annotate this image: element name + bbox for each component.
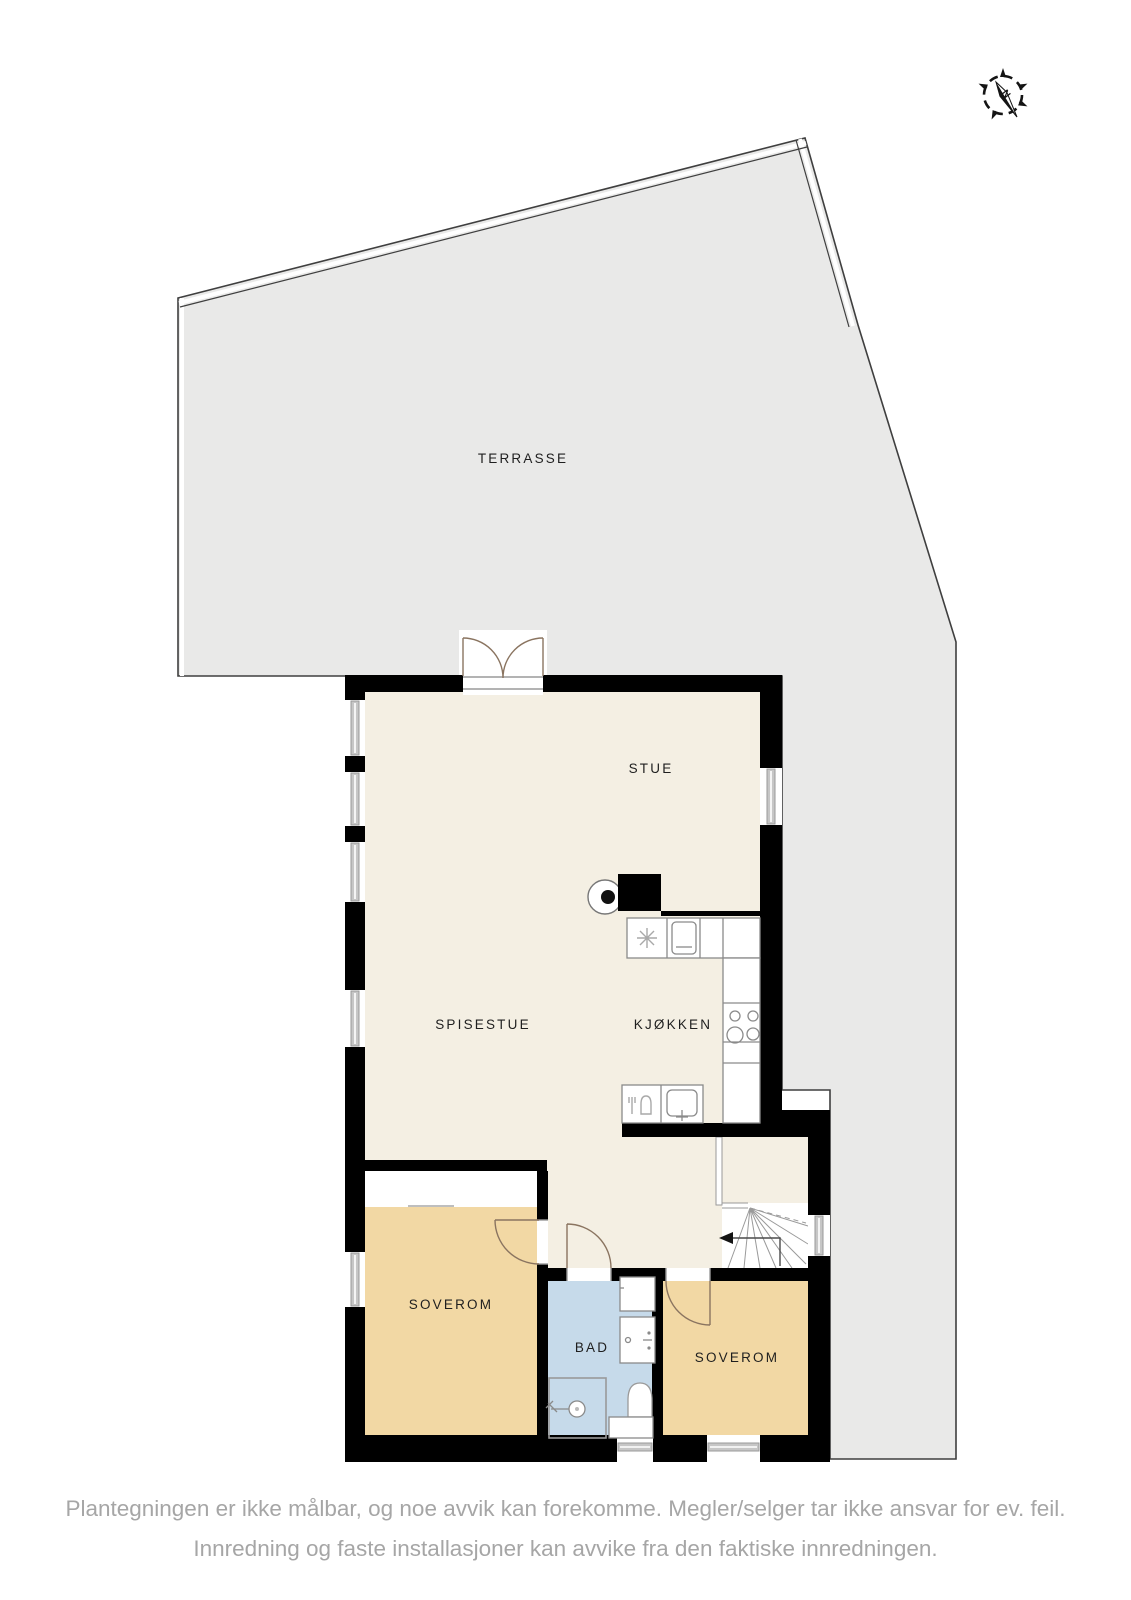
stair-railing	[716, 1137, 722, 1205]
label-terrasse: TERRASSE	[478, 451, 568, 466]
stove-fan-icon	[637, 928, 657, 948]
disclaimer-line-1: Plantegningen er ikke målbar, og noe avv…	[0, 1489, 1131, 1529]
label-spisestue: SPISESTUE	[435, 1017, 531, 1032]
label-soverom-right: SOVEROM	[695, 1350, 779, 1365]
stove-pipe-icon	[601, 890, 615, 904]
floor-plan-drawing: TERRASSE STUE SPISESTUE KJØKKEN SOVEROM …	[0, 0, 1131, 1600]
label-bad: BAD	[575, 1340, 609, 1355]
window	[345, 1252, 365, 1307]
window	[345, 700, 365, 756]
window	[345, 990, 365, 1047]
window	[808, 1215, 830, 1256]
compass-icon: N	[977, 68, 1028, 121]
label-kjokken: KJØKKEN	[634, 1017, 712, 1032]
window	[345, 772, 365, 826]
window	[760, 768, 782, 825]
window	[345, 842, 365, 902]
floor-plan-page: TERRASSE STUE SPISESTUE KJØKKEN SOVEROM …	[0, 0, 1131, 1600]
disclaimer-line-2: Innredning og faste installasjoner kan a…	[0, 1529, 1131, 1569]
window	[617, 1435, 653, 1462]
label-stue: STUE	[629, 761, 674, 776]
disclaimer-text: Plantegningen er ikke målbar, og noe avv…	[0, 1489, 1131, 1569]
room-soverom-left	[365, 1207, 537, 1435]
washing-machine-icon	[620, 1277, 655, 1311]
terrace-double-door	[459, 630, 547, 695]
label-soverom-left: SOVEROM	[409, 1297, 493, 1312]
closet-area	[365, 1171, 537, 1207]
window	[707, 1435, 760, 1462]
chimney	[618, 874, 661, 911]
